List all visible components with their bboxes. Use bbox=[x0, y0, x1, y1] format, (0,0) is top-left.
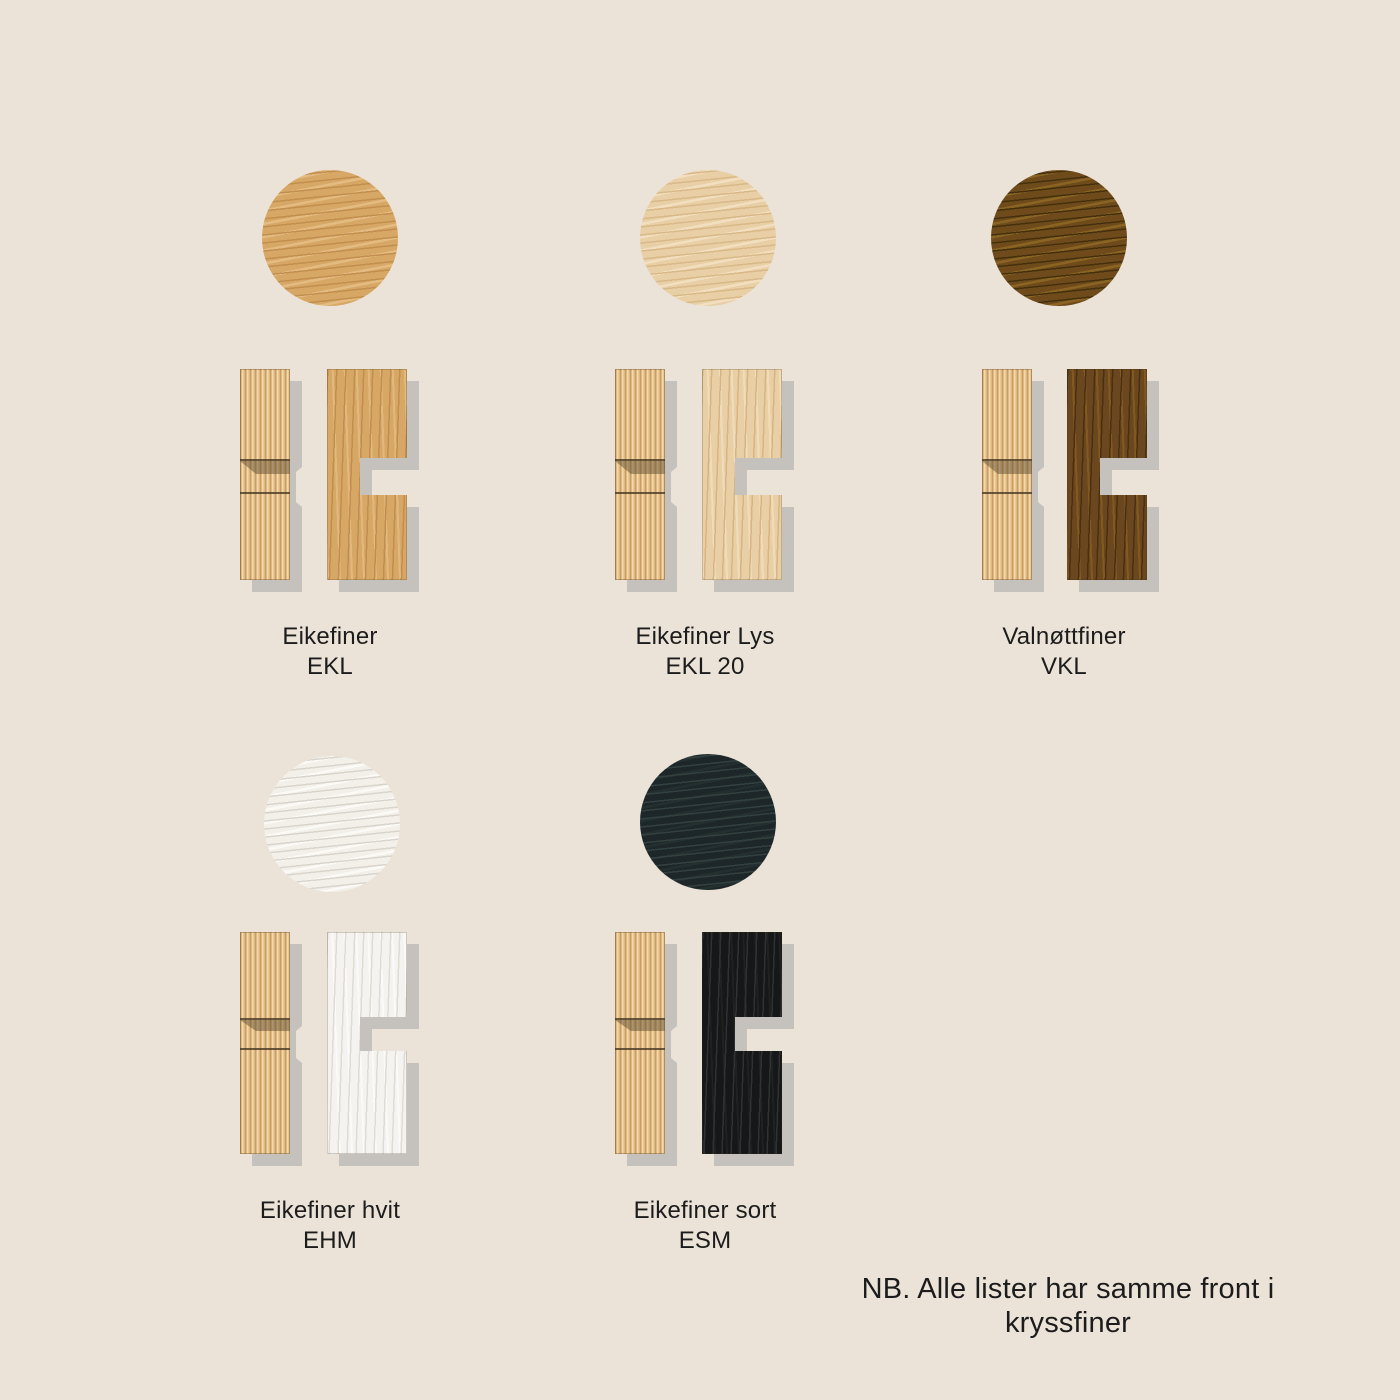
veneer-code-label: ESM bbox=[605, 1226, 805, 1256]
groove-line bbox=[615, 1018, 665, 1020]
swatch-group-esm: Eikefiner sort ESM bbox=[0, 0, 1400, 1400]
swatch-label-esm: Eikefiner sort ESM bbox=[605, 1196, 805, 1256]
groove-recess-face bbox=[615, 1020, 665, 1031]
veneer-name-label: Eikefiner sort bbox=[605, 1196, 805, 1226]
footnote: NB. Alle lister har samme front i kryssf… bbox=[818, 1272, 1318, 1340]
fluted-profile-piece-esm bbox=[615, 932, 665, 1154]
veneer-sample-circle-esm bbox=[640, 754, 776, 890]
veneer-swatch-chart: Eikefiner EKL Eikefiner Lys EKL 20 bbox=[0, 0, 1400, 1400]
groove-line bbox=[615, 1048, 665, 1050]
